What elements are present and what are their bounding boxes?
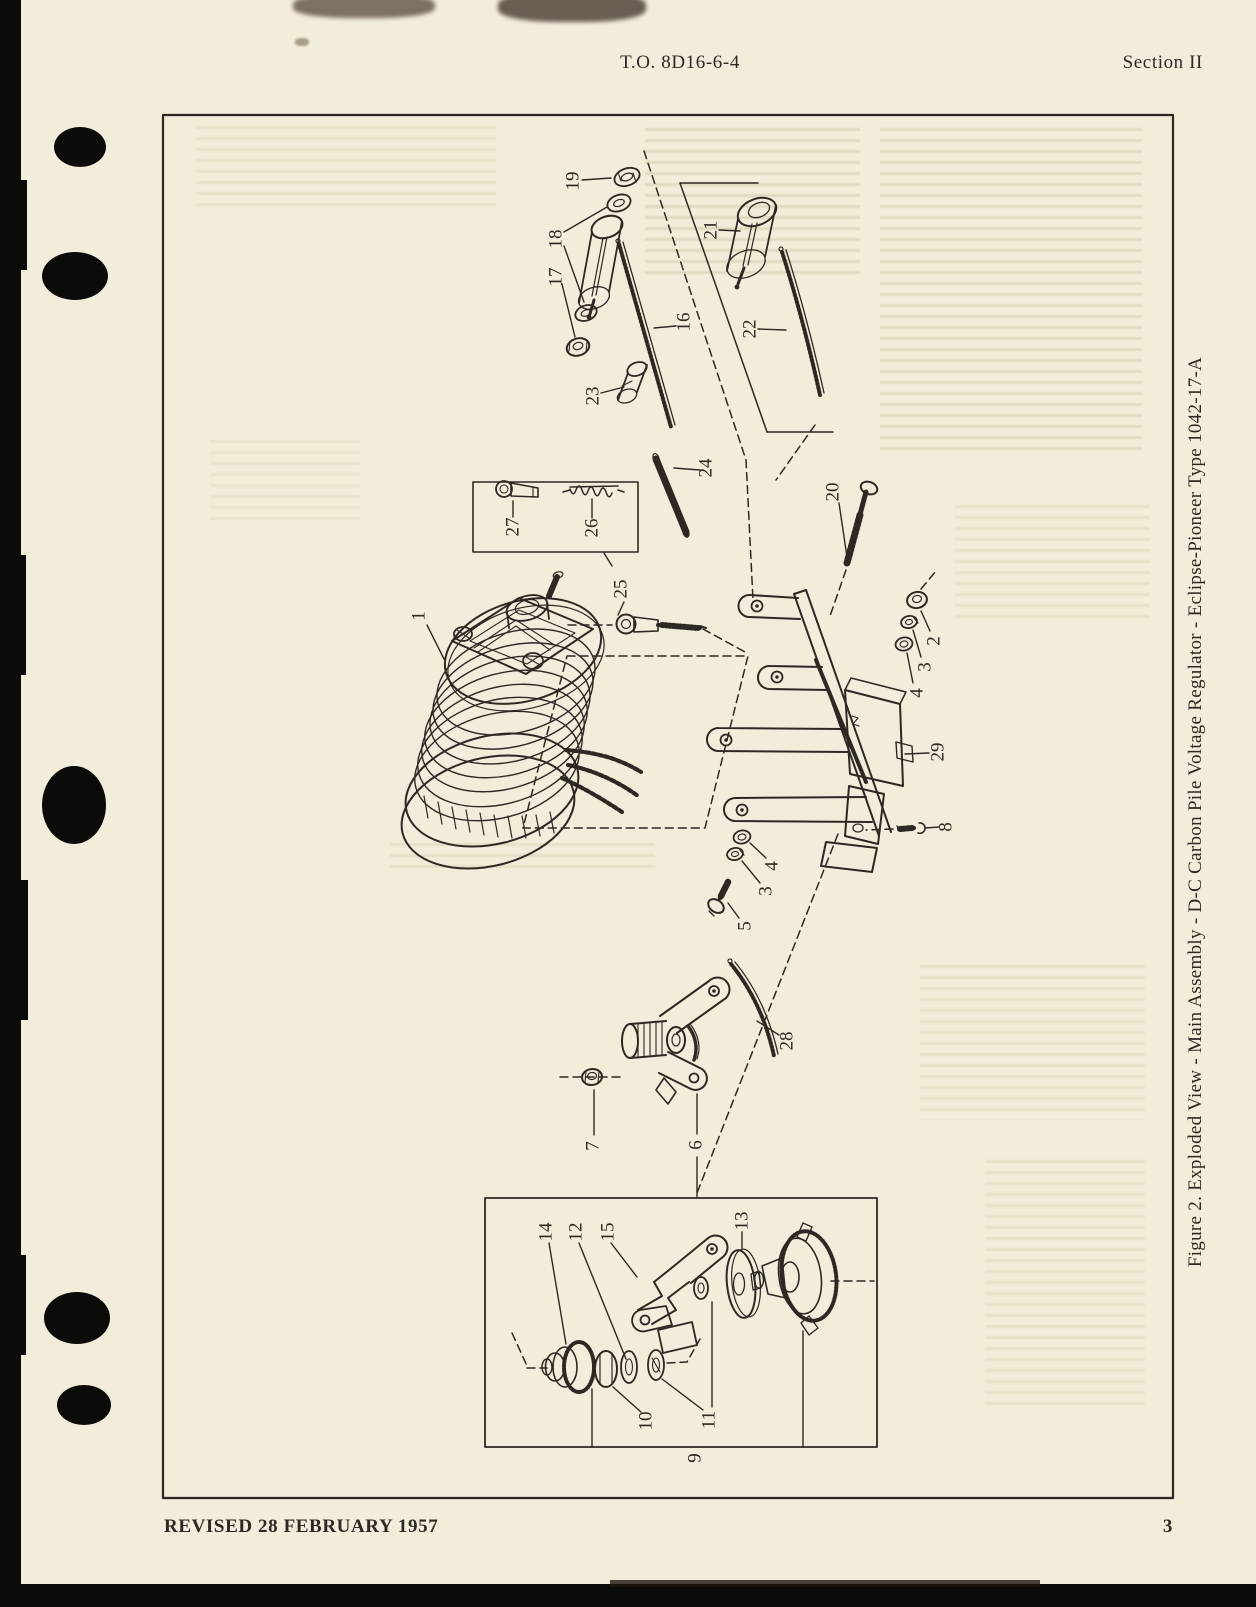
screw-5 [706, 881, 728, 916]
adjusting-screw-16 [616, 239, 675, 427]
mounting-bracket-29 [707, 590, 913, 872]
leader-line [907, 653, 913, 683]
scan-edge-bottom [0, 1584, 1256, 1607]
eye-bolt-25 [617, 615, 707, 634]
leader-line [839, 503, 847, 557]
assembly-centerlines [512, 151, 936, 1368]
part-label-3: 3 [756, 886, 777, 896]
punch-hole [57, 1385, 111, 1425]
washer-11 [648, 1350, 664, 1380]
leader-line [750, 843, 766, 858]
toothed-strip-22 [779, 247, 824, 395]
leader-line [611, 1243, 637, 1277]
leader-line [921, 611, 930, 631]
link-rod-24 [652, 453, 691, 538]
part-label-2: 2 [924, 636, 945, 646]
leader-line [662, 1379, 703, 1410]
part-label-14: 14 [536, 1222, 557, 1242]
binding-edge [21, 1255, 26, 1355]
part-label-4: 4 [762, 861, 783, 871]
part-label-12: 12 [566, 1223, 587, 1242]
exploded-view-diagram: 1191817231624212220252627234298435287614… [0, 0, 1256, 1607]
hex-nut-17 [564, 335, 591, 358]
leader-line [618, 602, 624, 615]
sleeve-and-strip-group [680, 183, 833, 432]
insulator-sleeve-21 [723, 192, 781, 289]
leader-line [427, 625, 444, 659]
punch-hole [42, 766, 106, 844]
screw-8 [897, 823, 925, 833]
part-label-17: 17 [546, 268, 567, 287]
part-label-27: 27 [503, 518, 524, 537]
part-label-5: 5 [735, 921, 756, 931]
lock-washer-3 [726, 846, 744, 861]
binding-edge [0, 0, 21, 1607]
cup-washer-18a [605, 191, 633, 214]
part-label-25: 25 [611, 580, 632, 599]
leader-line [564, 207, 607, 232]
part-label-3: 3 [915, 662, 936, 672]
leader-line [913, 630, 921, 657]
part-label-26: 26 [582, 519, 603, 538]
part-callouts: 1191817231624212220252627234298435287614… [409, 172, 957, 1463]
leader-line [582, 178, 611, 180]
part-label-22: 22 [740, 320, 761, 339]
group-frame [680, 183, 833, 432]
part-label-4: 4 [907, 688, 928, 698]
binding-edge [21, 180, 27, 270]
part-label-8: 8 [936, 822, 957, 832]
scan-edge-bottom [610, 1580, 1040, 1587]
leader-line [728, 903, 739, 918]
spring-terminal-inset [473, 481, 638, 552]
leader-line [564, 246, 584, 302]
figure-frame [163, 115, 1173, 1498]
part-label-24: 24 [696, 458, 717, 478]
cup-washer-18b [573, 302, 599, 324]
part-label-29: 29 [928, 743, 949, 762]
coil-spring-26 [563, 486, 624, 497]
part-label-23: 23 [583, 387, 604, 406]
hex-nut-2 [906, 590, 929, 610]
leader-line [579, 1243, 626, 1359]
leader-line [742, 861, 760, 883]
binding-edge [21, 880, 28, 1020]
support-bracket-15 [632, 1235, 727, 1353]
insulator-bushing [575, 212, 625, 320]
hex-nut-10 [595, 1351, 617, 1387]
mounting-screw-20 [847, 479, 879, 563]
leader-line [549, 1243, 566, 1344]
part-label-1: 1 [409, 611, 430, 621]
part-label-10: 10 [636, 1412, 657, 1431]
leader-line [905, 753, 929, 754]
washer-12 [621, 1351, 637, 1383]
part-label-15: 15 [598, 1223, 619, 1242]
part-label-6: 6 [686, 1140, 707, 1150]
part-label-16: 16 [674, 313, 695, 332]
punch-hole [44, 1292, 110, 1344]
flat-washer-4 [894, 636, 913, 652]
flat-washer-4 [732, 829, 751, 845]
part-label-19: 19 [563, 172, 584, 191]
part-label-13: 13 [732, 1212, 753, 1231]
part-label-11: 11 [699, 1411, 720, 1429]
part-label-7: 7 [583, 1141, 604, 1151]
leader-line [758, 329, 786, 330]
leader-line [562, 284, 575, 337]
scanned-manual-page: T.O. 8D16-6-4 Section II Figure 2. Explo… [0, 0, 1256, 1607]
leader-line [719, 230, 740, 231]
eye-terminal-27 [496, 481, 538, 497]
part-label-18: 18 [546, 230, 567, 249]
part-label-20: 20 [823, 483, 844, 502]
rheostat-knob [751, 1223, 842, 1335]
lever-assembly-6 [581, 959, 778, 1104]
lock-washer-3 [900, 614, 918, 629]
leader-line [604, 553, 612, 566]
lock-washer-19 [612, 165, 642, 190]
part-label-28: 28 [777, 1032, 798, 1051]
part-label-9: 9 [685, 1453, 706, 1463]
punch-hole [42, 252, 108, 300]
binding-edge [21, 555, 26, 675]
thumb-nut-14 [542, 1342, 594, 1392]
part-label-21: 21 [701, 221, 722, 240]
insulating-disc-13 [724, 1248, 764, 1320]
leader-line [613, 1387, 641, 1412]
sleeve-23 [615, 359, 648, 405]
punch-hole [54, 127, 106, 167]
